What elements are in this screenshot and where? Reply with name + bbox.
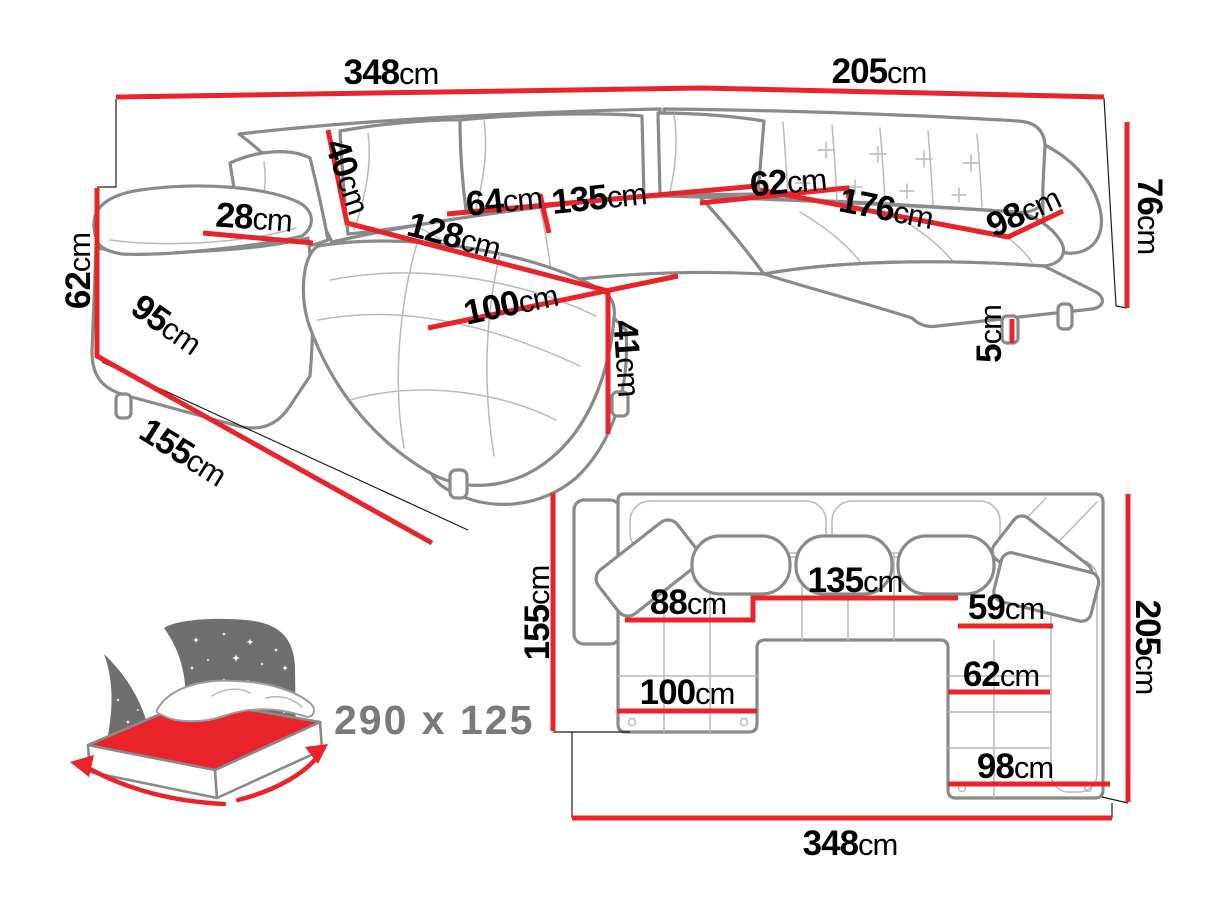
label-348: 348cm bbox=[344, 53, 439, 92]
plan-pillow-4 bbox=[898, 536, 994, 594]
plan-view: 155cm 205cm 348cm 88cm 135cm 59cm 62cm 1… bbox=[518, 493, 1167, 863]
left-leg bbox=[116, 394, 131, 418]
sofa-dimension-diagram: 348cm 205cm 76cm 62cm 155cm 28cm 40cm 64… bbox=[0, 0, 1214, 910]
plan-label-62: 62cm bbox=[963, 655, 1039, 694]
plan-label-205: 205cm bbox=[1128, 600, 1167, 695]
label-62-seat: 62cm bbox=[748, 159, 827, 204]
label-28: 28cm bbox=[214, 195, 293, 239]
plan-label-135: 135cm bbox=[808, 561, 903, 600]
label-41: 41cm bbox=[605, 319, 649, 398]
sofa-perspective-drawing bbox=[92, 109, 1102, 504]
plan-label-88: 88cm bbox=[650, 583, 726, 622]
right-base bbox=[764, 262, 1102, 327]
plan-label-59: 59cm bbox=[968, 588, 1044, 627]
right-leg-back bbox=[1058, 304, 1072, 329]
label-5: 5cm bbox=[970, 305, 1009, 363]
label-62-left: 62cm bbox=[59, 233, 98, 309]
plan-label-100: 100cm bbox=[640, 673, 735, 712]
label-76: 76cm bbox=[1130, 178, 1169, 254]
plan-label-155: 155cm bbox=[518, 566, 557, 661]
plan-label-98: 98cm bbox=[977, 747, 1053, 786]
sleeping-function-icon: 290 x 125 bbox=[70, 619, 534, 804]
pillow-4-corner bbox=[658, 113, 764, 194]
plan-label-348: 348cm bbox=[803, 824, 898, 863]
chaise-leg-front bbox=[450, 470, 467, 498]
sleeping-size-label: 290 x 125 bbox=[334, 697, 534, 743]
perspective-view: 348cm 205cm 76cm 62cm 155cm 28cm 40cm 64… bbox=[59, 52, 1169, 543]
label-205: 205cm bbox=[832, 52, 927, 91]
dim-line-348-205 bbox=[116, 88, 1104, 97]
diagram-canvas: 348cm 205cm 76cm 62cm 155cm 28cm 40cm 64… bbox=[0, 0, 1214, 910]
